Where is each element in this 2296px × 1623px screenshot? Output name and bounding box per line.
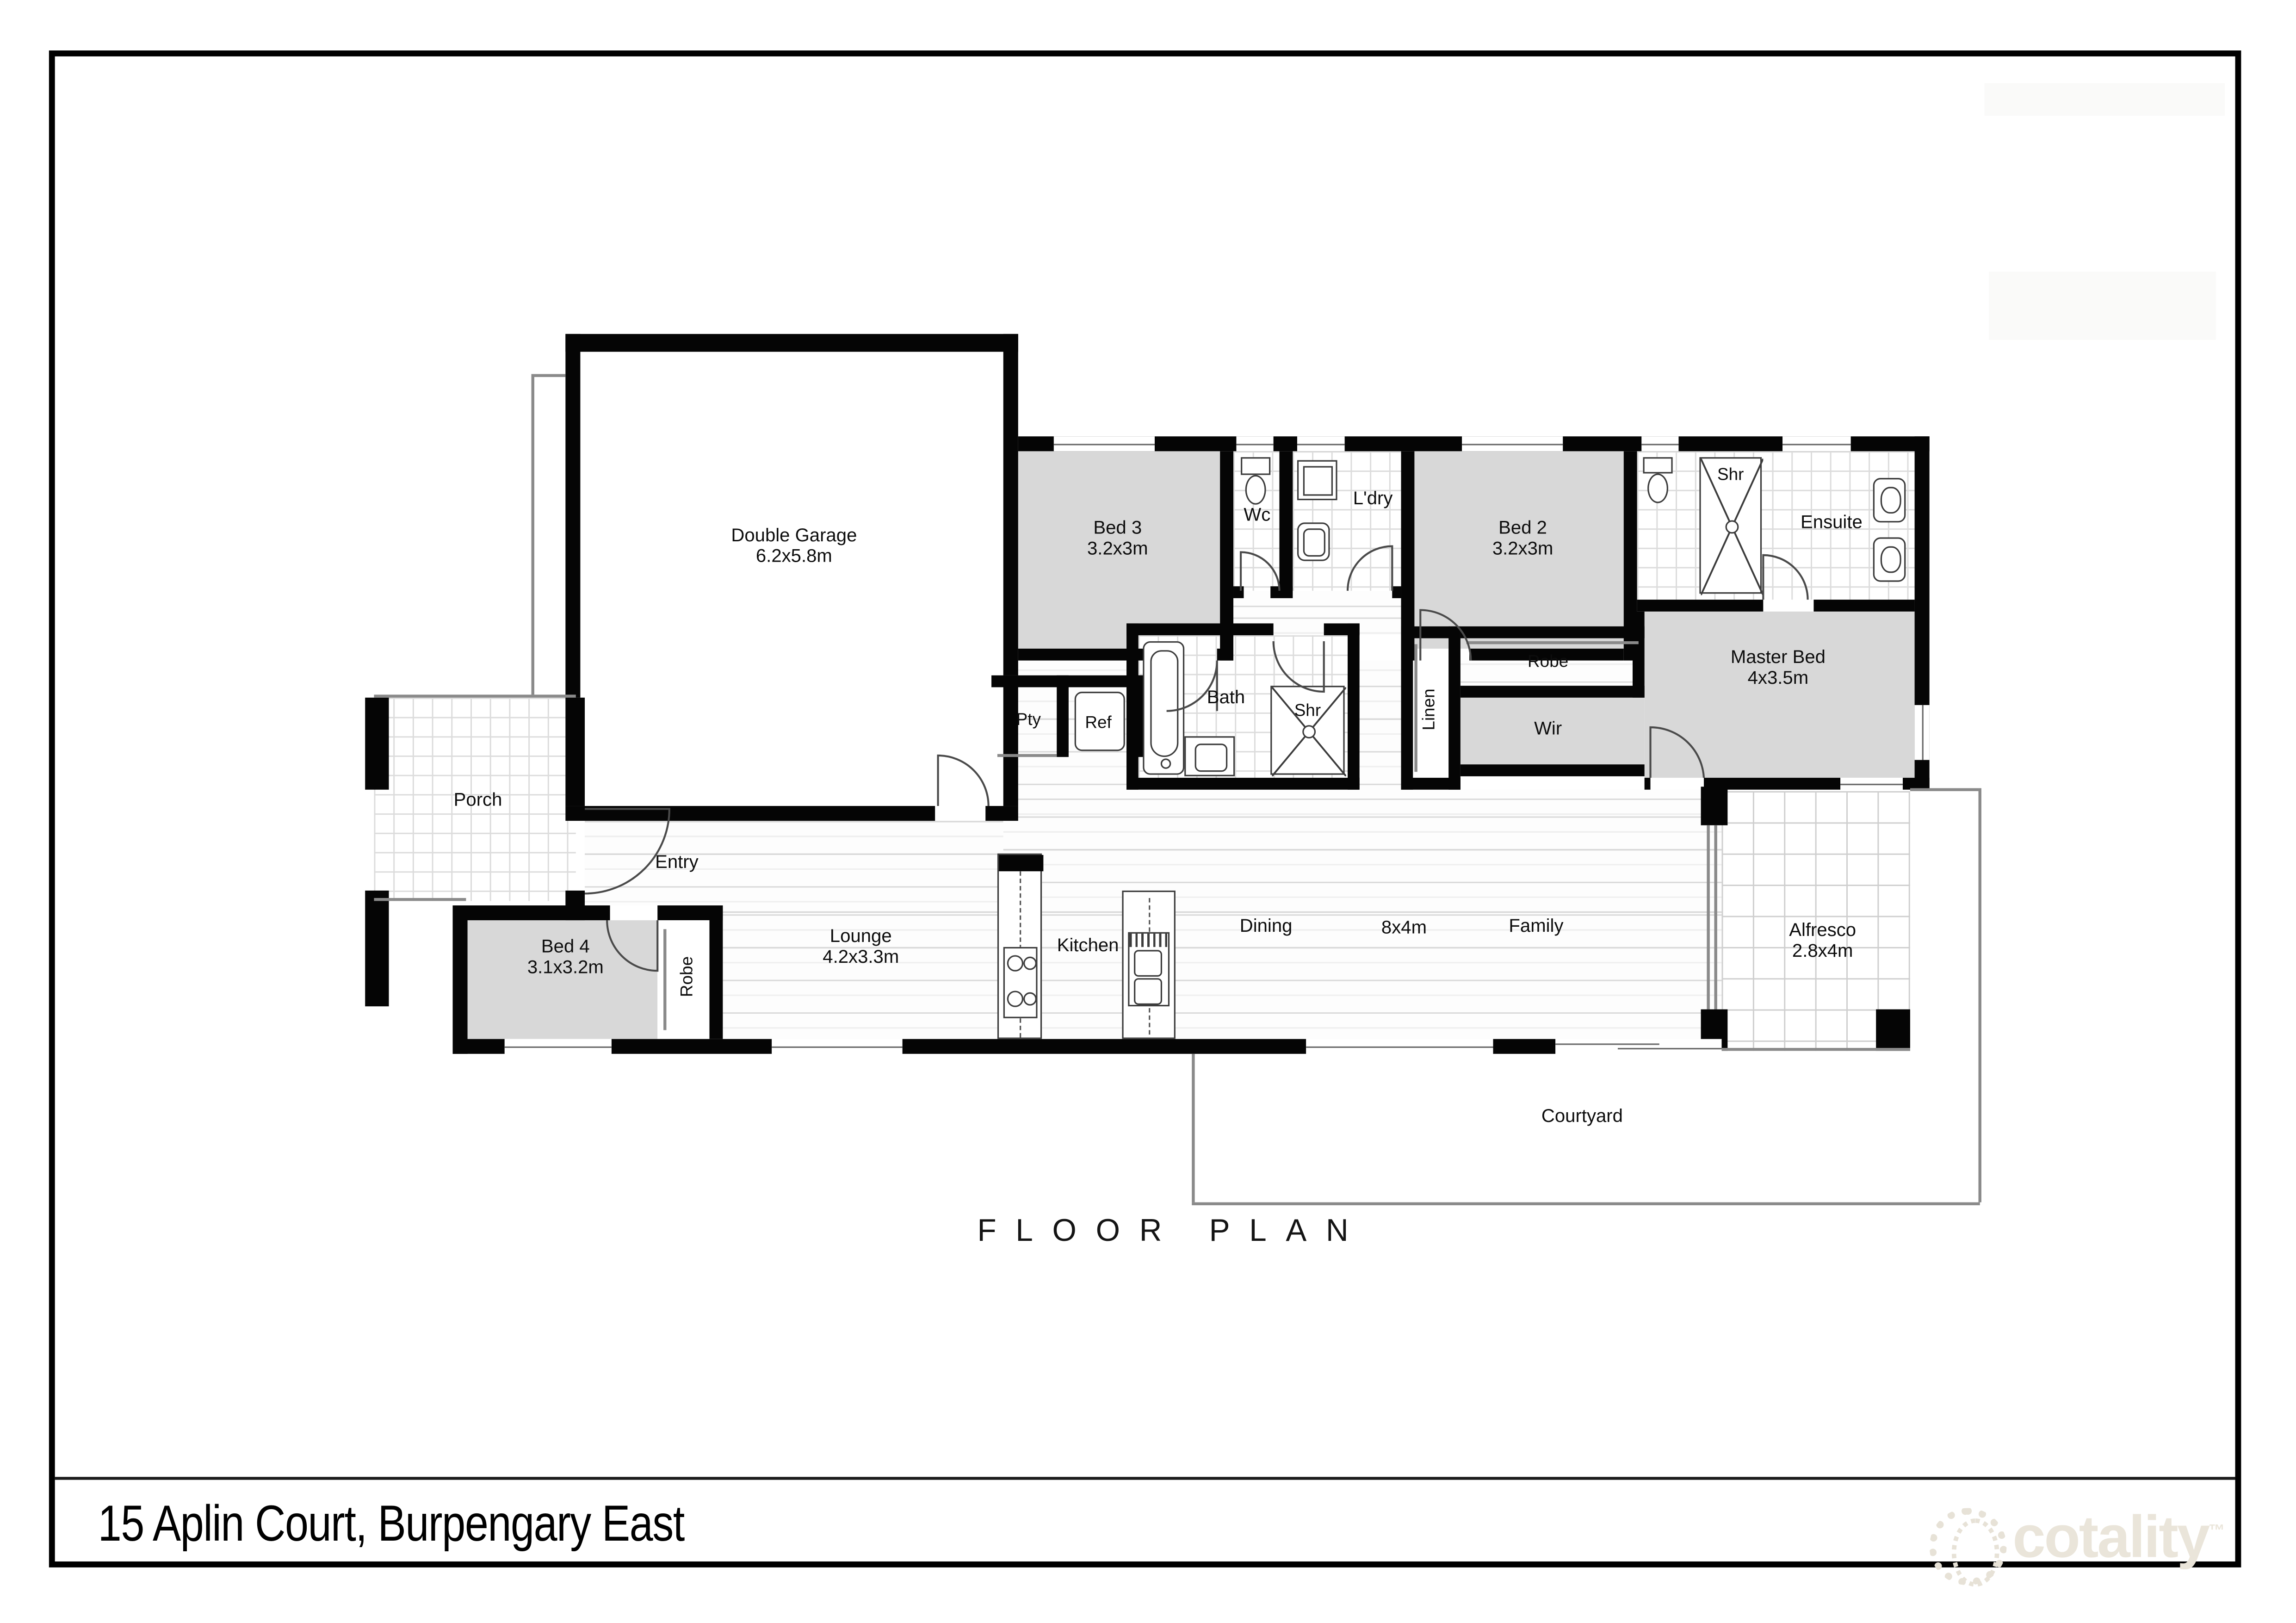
ensuite-basin2-icon <box>1873 537 1906 582</box>
linen-south-wall <box>1401 778 1461 790</box>
ensuite-south-wall-left <box>1637 600 1764 612</box>
title-separator-line <box>55 1477 2235 1480</box>
courtyard-south-line <box>1192 1202 1980 1205</box>
ensuite-basin1-icon <box>1873 478 1906 522</box>
bed3-south-stub <box>1217 649 1233 661</box>
bed2-window <box>1462 436 1563 451</box>
ldry-door-stub <box>1392 586 1401 598</box>
kitchen-label: Kitchen <box>1057 935 1119 956</box>
master-bed-room <box>1645 612 1915 778</box>
porch-south-edge <box>374 898 466 901</box>
wc-ldry-divider-wall <box>1279 451 1293 591</box>
kitchen-sink-icon <box>1128 932 1170 1006</box>
wir-label: Wir <box>1534 718 1562 739</box>
driveway-edge-north <box>532 374 566 377</box>
bed4-robe-slider-line <box>663 929 666 1030</box>
dining-window <box>1306 1039 1493 1054</box>
master-west-wall-upper <box>1633 612 1645 698</box>
robe-bed4-label: Robe <box>679 956 698 997</box>
ldry-label: L'dry <box>1353 488 1393 509</box>
bed3-label: Bed 33.2x3m <box>1087 517 1148 560</box>
south-wall-seg2 <box>612 1039 772 1054</box>
wc-cistern-icon <box>1241 457 1270 475</box>
bath-north-wall-right <box>1324 623 1360 635</box>
page-scaler: Double Garage6.2x5.8m Bed 33.2x3m Wc L'd… <box>0 0 2296 1623</box>
bath-shower-icon <box>1270 686 1344 774</box>
ensuite-cistern-icon <box>1643 457 1672 473</box>
ensuite-toilet-icon <box>1647 473 1668 503</box>
hall-floor-mid <box>1360 661 1401 790</box>
porch-post-nw <box>365 698 389 790</box>
ref-label: Ref <box>1085 714 1111 734</box>
master-south-stub-left <box>1645 778 1651 790</box>
robe-master-label: Robe <box>1528 654 1568 673</box>
bath-vanity-icon <box>1184 736 1235 776</box>
garage-east-wall <box>1003 334 1018 675</box>
linen-door-line <box>1414 644 1417 772</box>
alfresco-post-nw <box>1701 787 1728 825</box>
garage-floor <box>580 352 1003 806</box>
courtyard-east-line <box>1979 788 1981 1202</box>
ensuite-label: Ensuite <box>1801 512 1863 533</box>
wc-door-stub <box>1233 586 1244 598</box>
cotality-wordmark: cotality™ <box>2012 1505 2223 1572</box>
bed4-window <box>505 1039 612 1054</box>
pty-ref-divider <box>1057 675 1069 757</box>
wc-window <box>1236 436 1273 451</box>
bath-south-wall <box>1126 778 1360 790</box>
bed3-west-wall-lower <box>1003 675 1018 806</box>
wc-toilet-icon <box>1245 475 1266 505</box>
address-title: 15 Aplin Court, Burpengary East <box>98 1496 684 1554</box>
linen-east-wall <box>1448 626 1461 790</box>
alfresco-south-edge <box>1722 1048 1910 1051</box>
lounge-window <box>772 1039 902 1054</box>
wir-south-wall <box>1461 764 1645 776</box>
ensuite-south-wall-right <box>1813 600 1914 612</box>
bed4-label: Bed 43.1x3.2m <box>527 936 604 979</box>
pty-label: Pty <box>1016 712 1041 731</box>
garage-south-wall-left <box>565 806 935 821</box>
pty-open-edge <box>997 754 1057 757</box>
faint-watermark-top <box>1984 83 2225 116</box>
faint-watermark-lower <box>1989 272 2216 340</box>
linen-west-wall <box>1401 626 1413 790</box>
washer-icon <box>1297 460 1337 501</box>
linen-label: Linen <box>1421 688 1441 730</box>
robe-north-wall <box>1461 626 1645 638</box>
bath-east-wall <box>1348 623 1360 789</box>
porch-east-wall <box>565 698 585 806</box>
robe-south-wall <box>1461 686 1645 698</box>
wc-ldry-south-stub <box>1270 586 1293 598</box>
master-south-window <box>1840 778 1903 790</box>
floor-plan-page: Double Garage6.2x5.8m Bed 33.2x3m Wc L'd… <box>0 0 2296 1623</box>
master-east-window <box>1915 705 1930 760</box>
stove-icon <box>1003 947 1038 1018</box>
garage-west-wall <box>565 334 580 698</box>
driveway-edge-west <box>532 374 534 694</box>
bath-west-wall <box>1126 623 1139 789</box>
garage-label: Double Garage6.2x5.8m <box>731 525 857 567</box>
ensuite-wc-window <box>1641 436 1678 451</box>
kitchen-bench-cap <box>999 855 1043 871</box>
south-wall-seg4 <box>1493 1039 1555 1054</box>
courtyard-west-line <box>1192 1054 1194 1202</box>
kitchen-dining-floor <box>1003 790 1722 905</box>
family-label: Family <box>1509 916 1563 937</box>
lounge-label: Lounge4.2x3.3m <box>823 926 899 968</box>
ensuite-shr-label: Shr <box>1717 467 1744 486</box>
family-sliding-door <box>1555 1039 1721 1054</box>
porch-north-edge <box>374 694 576 697</box>
linen-north-wall <box>1401 626 1461 638</box>
alfresco-post-se <box>1876 1010 1910 1051</box>
garage-north-wall <box>565 334 1018 352</box>
robe-slider-line <box>1467 641 1639 644</box>
ldry-window <box>1297 436 1345 451</box>
bed3-window <box>1054 436 1155 451</box>
bed2-label: Bed 23.2x3m <box>1492 517 1553 560</box>
alfresco-slider-line1 <box>1707 825 1709 1010</box>
south-wall-seg1 <box>453 1039 505 1054</box>
ensuite-floor <box>1637 451 1915 600</box>
cotality-globe-icon <box>1930 1508 2007 1586</box>
bath-label: Bath <box>1207 687 1245 708</box>
plan-title: FLOOR PLAN <box>978 1214 1368 1250</box>
courtyard-north-line <box>1910 788 1979 791</box>
entry-label: Entry <box>655 852 699 873</box>
courtyard-label: Courtyard <box>1541 1106 1623 1127</box>
alfresco-label: Alfresco2.8x4m <box>1789 920 1856 962</box>
alfresco-slider-line2 <box>1714 825 1717 1010</box>
porch-label: Porch <box>454 789 502 811</box>
bath-north-wall-left <box>1126 623 1274 635</box>
bed4-west-wall <box>453 905 468 1054</box>
wc-label: Wc <box>1244 504 1270 526</box>
bath-shr-label: Shr <box>1294 703 1321 722</box>
bed4-east-wall <box>710 905 723 1039</box>
bed4-north-wall-left <box>453 905 610 920</box>
laundry-tub-icon <box>1297 522 1330 561</box>
garage-south-wall-right <box>985 806 1018 821</box>
living-dims-label: 8x4m <box>1381 917 1427 938</box>
south-wall-seg3 <box>903 1039 1306 1054</box>
bathtub-icon <box>1143 641 1184 775</box>
dining-label: Dining <box>1240 916 1293 937</box>
ensuite-window <box>1782 436 1851 451</box>
master-label: Master Bed4x3.5m <box>1731 647 1826 689</box>
porch-post-sw <box>365 891 389 1006</box>
entry-floor <box>585 821 1003 905</box>
